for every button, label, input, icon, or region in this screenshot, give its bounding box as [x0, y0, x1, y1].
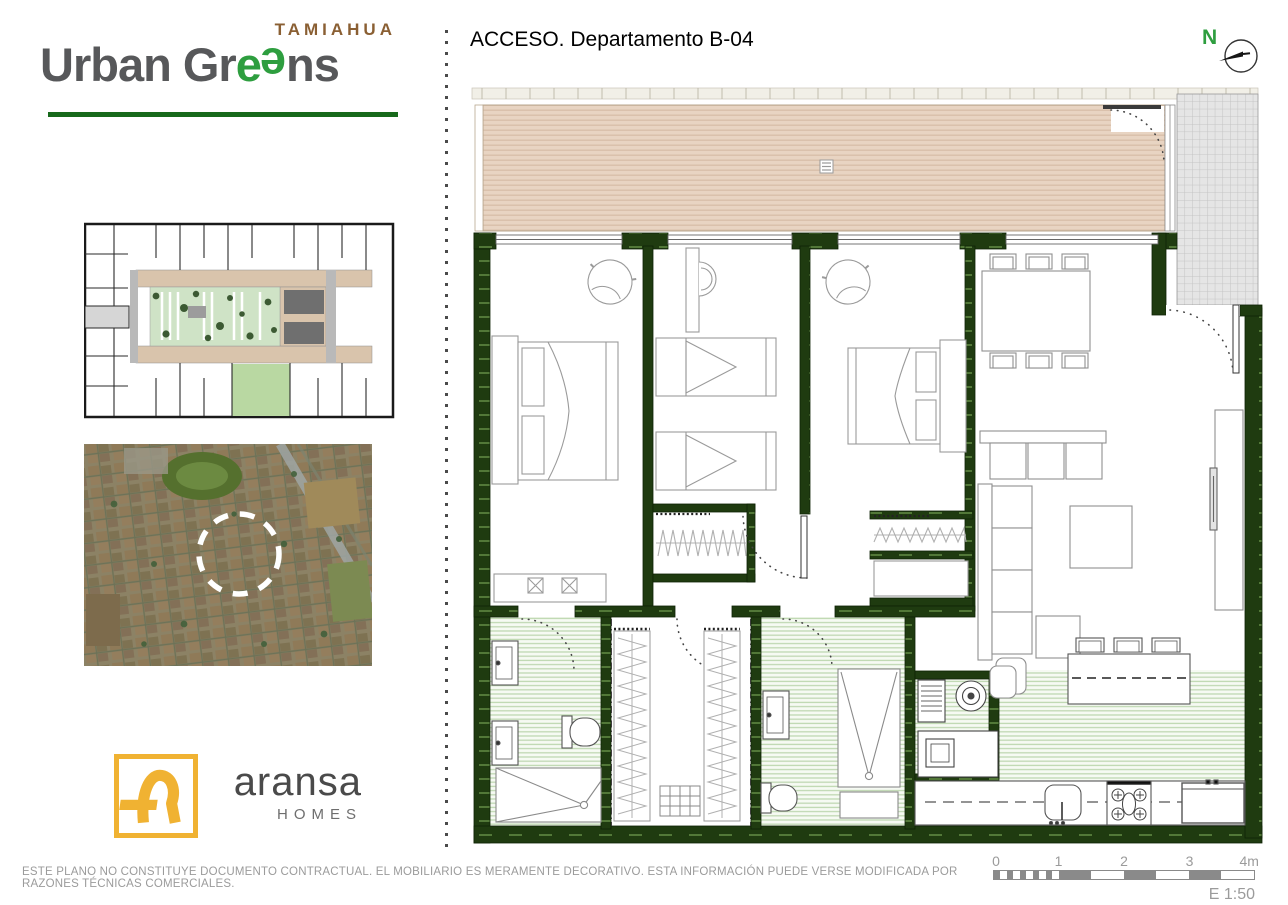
toilet — [562, 716, 600, 748]
column-separator — [445, 30, 448, 848]
sink — [492, 721, 518, 765]
plan-sheet: TAMIAHUA Urban Greens ACCESO. Departamen… — [0, 0, 1288, 905]
bedroom-1 — [492, 254, 640, 602]
bedroom-3 — [819, 255, 968, 596]
toilet — [761, 783, 797, 813]
closet-rod — [874, 516, 966, 542]
closet-rod — [656, 514, 747, 556]
scale-bar: 0 1 2 3 4m E 1:50 — [993, 853, 1255, 904]
stove — [1107, 781, 1151, 825]
developer-name: aransa — [212, 762, 362, 802]
coffee-table — [1070, 506, 1132, 568]
kitchen-sink — [1045, 785, 1081, 825]
dining-table — [982, 271, 1090, 351]
sink — [492, 641, 518, 685]
bedroom-door-leaf — [801, 516, 807, 578]
shoe-grid — [660, 786, 700, 816]
floor-drain-icon — [820, 160, 833, 173]
developer-logo: aransa HOMES — [114, 754, 364, 842]
tv-console — [1210, 410, 1243, 610]
satellite-image — [84, 444, 372, 666]
brand-name: Urban Greens — [40, 40, 398, 89]
project-name: TAMIAHUA — [40, 20, 398, 40]
page-title: ACCESO. Departamento B-04 — [470, 28, 754, 52]
floor-plan — [470, 86, 1265, 848]
terrace — [475, 105, 1165, 231]
sink — [763, 691, 789, 739]
brand-underline — [48, 112, 398, 117]
walkin-closet — [612, 619, 751, 826]
compass-circle — [1214, 30, 1262, 78]
brand-logo: TAMIAHUA Urban Greens — [40, 20, 398, 89]
side-table — [1036, 616, 1080, 658]
dryer — [956, 681, 986, 711]
dimension-strip — [472, 88, 1258, 99]
entry-door — [1166, 305, 1240, 373]
site-plan-thumbnail — [84, 218, 396, 420]
aransa-a-icon — [114, 754, 198, 838]
developer-tagline: HOMES — [212, 806, 362, 823]
common-hall — [1165, 94, 1258, 305]
scale-bar-graphic — [993, 870, 1255, 880]
shower — [838, 669, 900, 818]
washer — [918, 680, 945, 722]
disclaimer-text: ESTE PLANO NO CONSTITUYE DOCUMENTO CONTR… — [22, 866, 962, 890]
refrigerator — [1182, 780, 1244, 823]
scale-ratio-label: E 1:50 — [993, 886, 1255, 904]
shower — [496, 768, 601, 822]
island — [1068, 638, 1190, 704]
scale-tick-labels: 0 1 2 3 4m — [993, 853, 1255, 870]
north-compass-icon: N — [1202, 26, 1262, 78]
